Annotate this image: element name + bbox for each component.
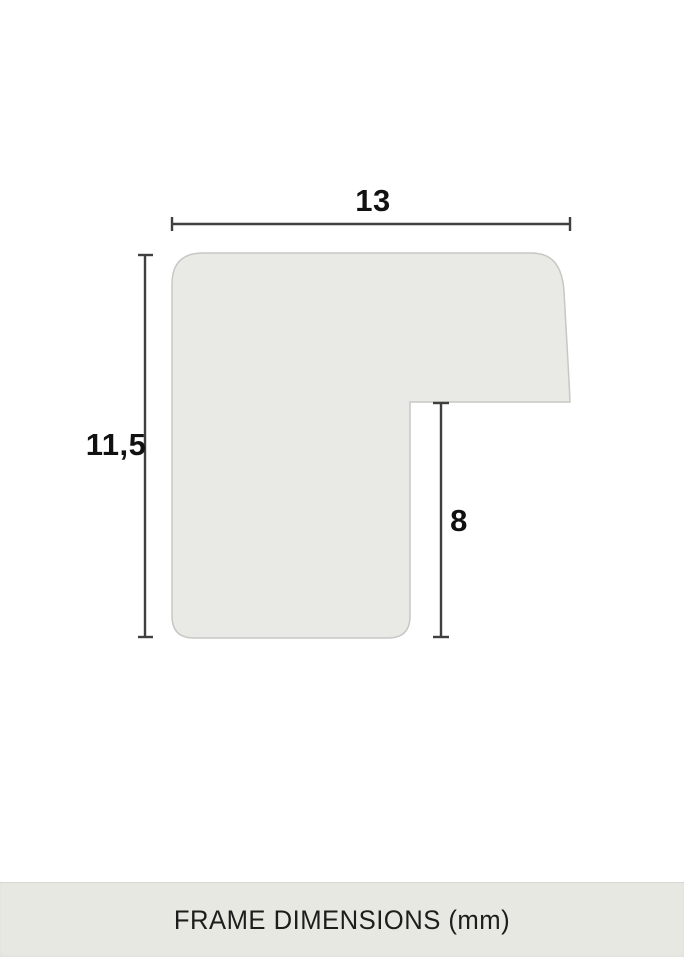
width-dimension-line (172, 217, 570, 231)
width-dimension-label: 13 (355, 183, 390, 219)
rabbet-dimension-line (433, 403, 449, 637)
footer-bar: FRAME DIMENSIONS (mm) (0, 882, 684, 957)
footer-caption: FRAME DIMENSIONS (mm) (174, 905, 510, 936)
height-dimension-label: 11,5 (86, 427, 147, 463)
frame-profile-shape (172, 253, 570, 638)
frame-dimensions-diagram: 13 11,5 8 FRAME DIMENSIONS (mm) (0, 0, 684, 957)
rabbet-dimension-label: 8 (450, 503, 468, 539)
